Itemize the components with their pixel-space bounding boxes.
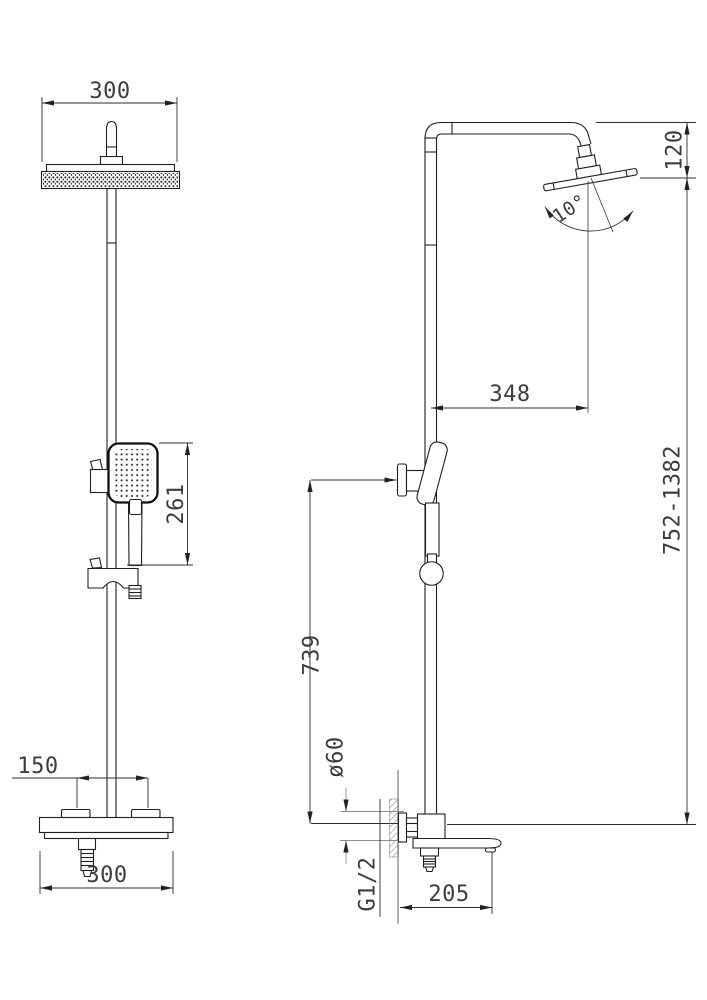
dim-spout-reach: 205 bbox=[400, 852, 492, 914]
height-range-label: 752-1382 bbox=[661, 445, 686, 555]
inlet-thread-note: G1/2 bbox=[356, 799, 381, 917]
front-view: 300 261 bbox=[12, 79, 193, 894]
spout-valve-side bbox=[399, 813, 502, 872]
dim-horizontal-offset: 348 bbox=[431, 382, 588, 408]
head-drop-label: 120 bbox=[663, 129, 688, 170]
overhead-shower-front bbox=[42, 122, 180, 189]
wall-section bbox=[390, 770, 399, 924]
handle-spacing-label: 150 bbox=[17, 754, 58, 779]
drawing-svg: 300 261 bbox=[0, 0, 707, 1000]
dim-handle-spacing: 150 bbox=[12, 754, 148, 808]
tilt-annotation: 10° bbox=[545, 178, 633, 413]
hand-shower-holder-side bbox=[311, 464, 437, 496]
wall-bracket-front bbox=[91, 460, 109, 493]
technical-drawing-canvas: 300 261 bbox=[0, 0, 707, 1000]
side-view: 10° 120 752-1382 348 bbox=[300, 123, 697, 925]
tilt-angle-label: 10° bbox=[549, 190, 591, 228]
hand-shower-side bbox=[415, 440, 448, 585]
dim-slide-bar-height: 739 bbox=[300, 480, 419, 824]
horizontal-offset-label: 348 bbox=[489, 382, 530, 407]
escutcheon-diameter-label: ø60 bbox=[324, 736, 349, 777]
slide-bar-height-label: 739 bbox=[300, 634, 325, 675]
spout-reach-label: 205 bbox=[428, 882, 469, 907]
dim-body-width: 300 bbox=[40, 851, 173, 894]
head-width-label: 300 bbox=[89, 79, 130, 104]
body-width-label: 300 bbox=[86, 863, 127, 888]
riser-pipe-side bbox=[425, 123, 591, 816]
dim-head-drop: 120 bbox=[596, 123, 696, 179]
inlet-thread-label: G1/2 bbox=[356, 857, 381, 912]
dim-height-range: 752-1382 bbox=[447, 178, 696, 825]
hand-shower-length-label: 261 bbox=[164, 483, 189, 524]
